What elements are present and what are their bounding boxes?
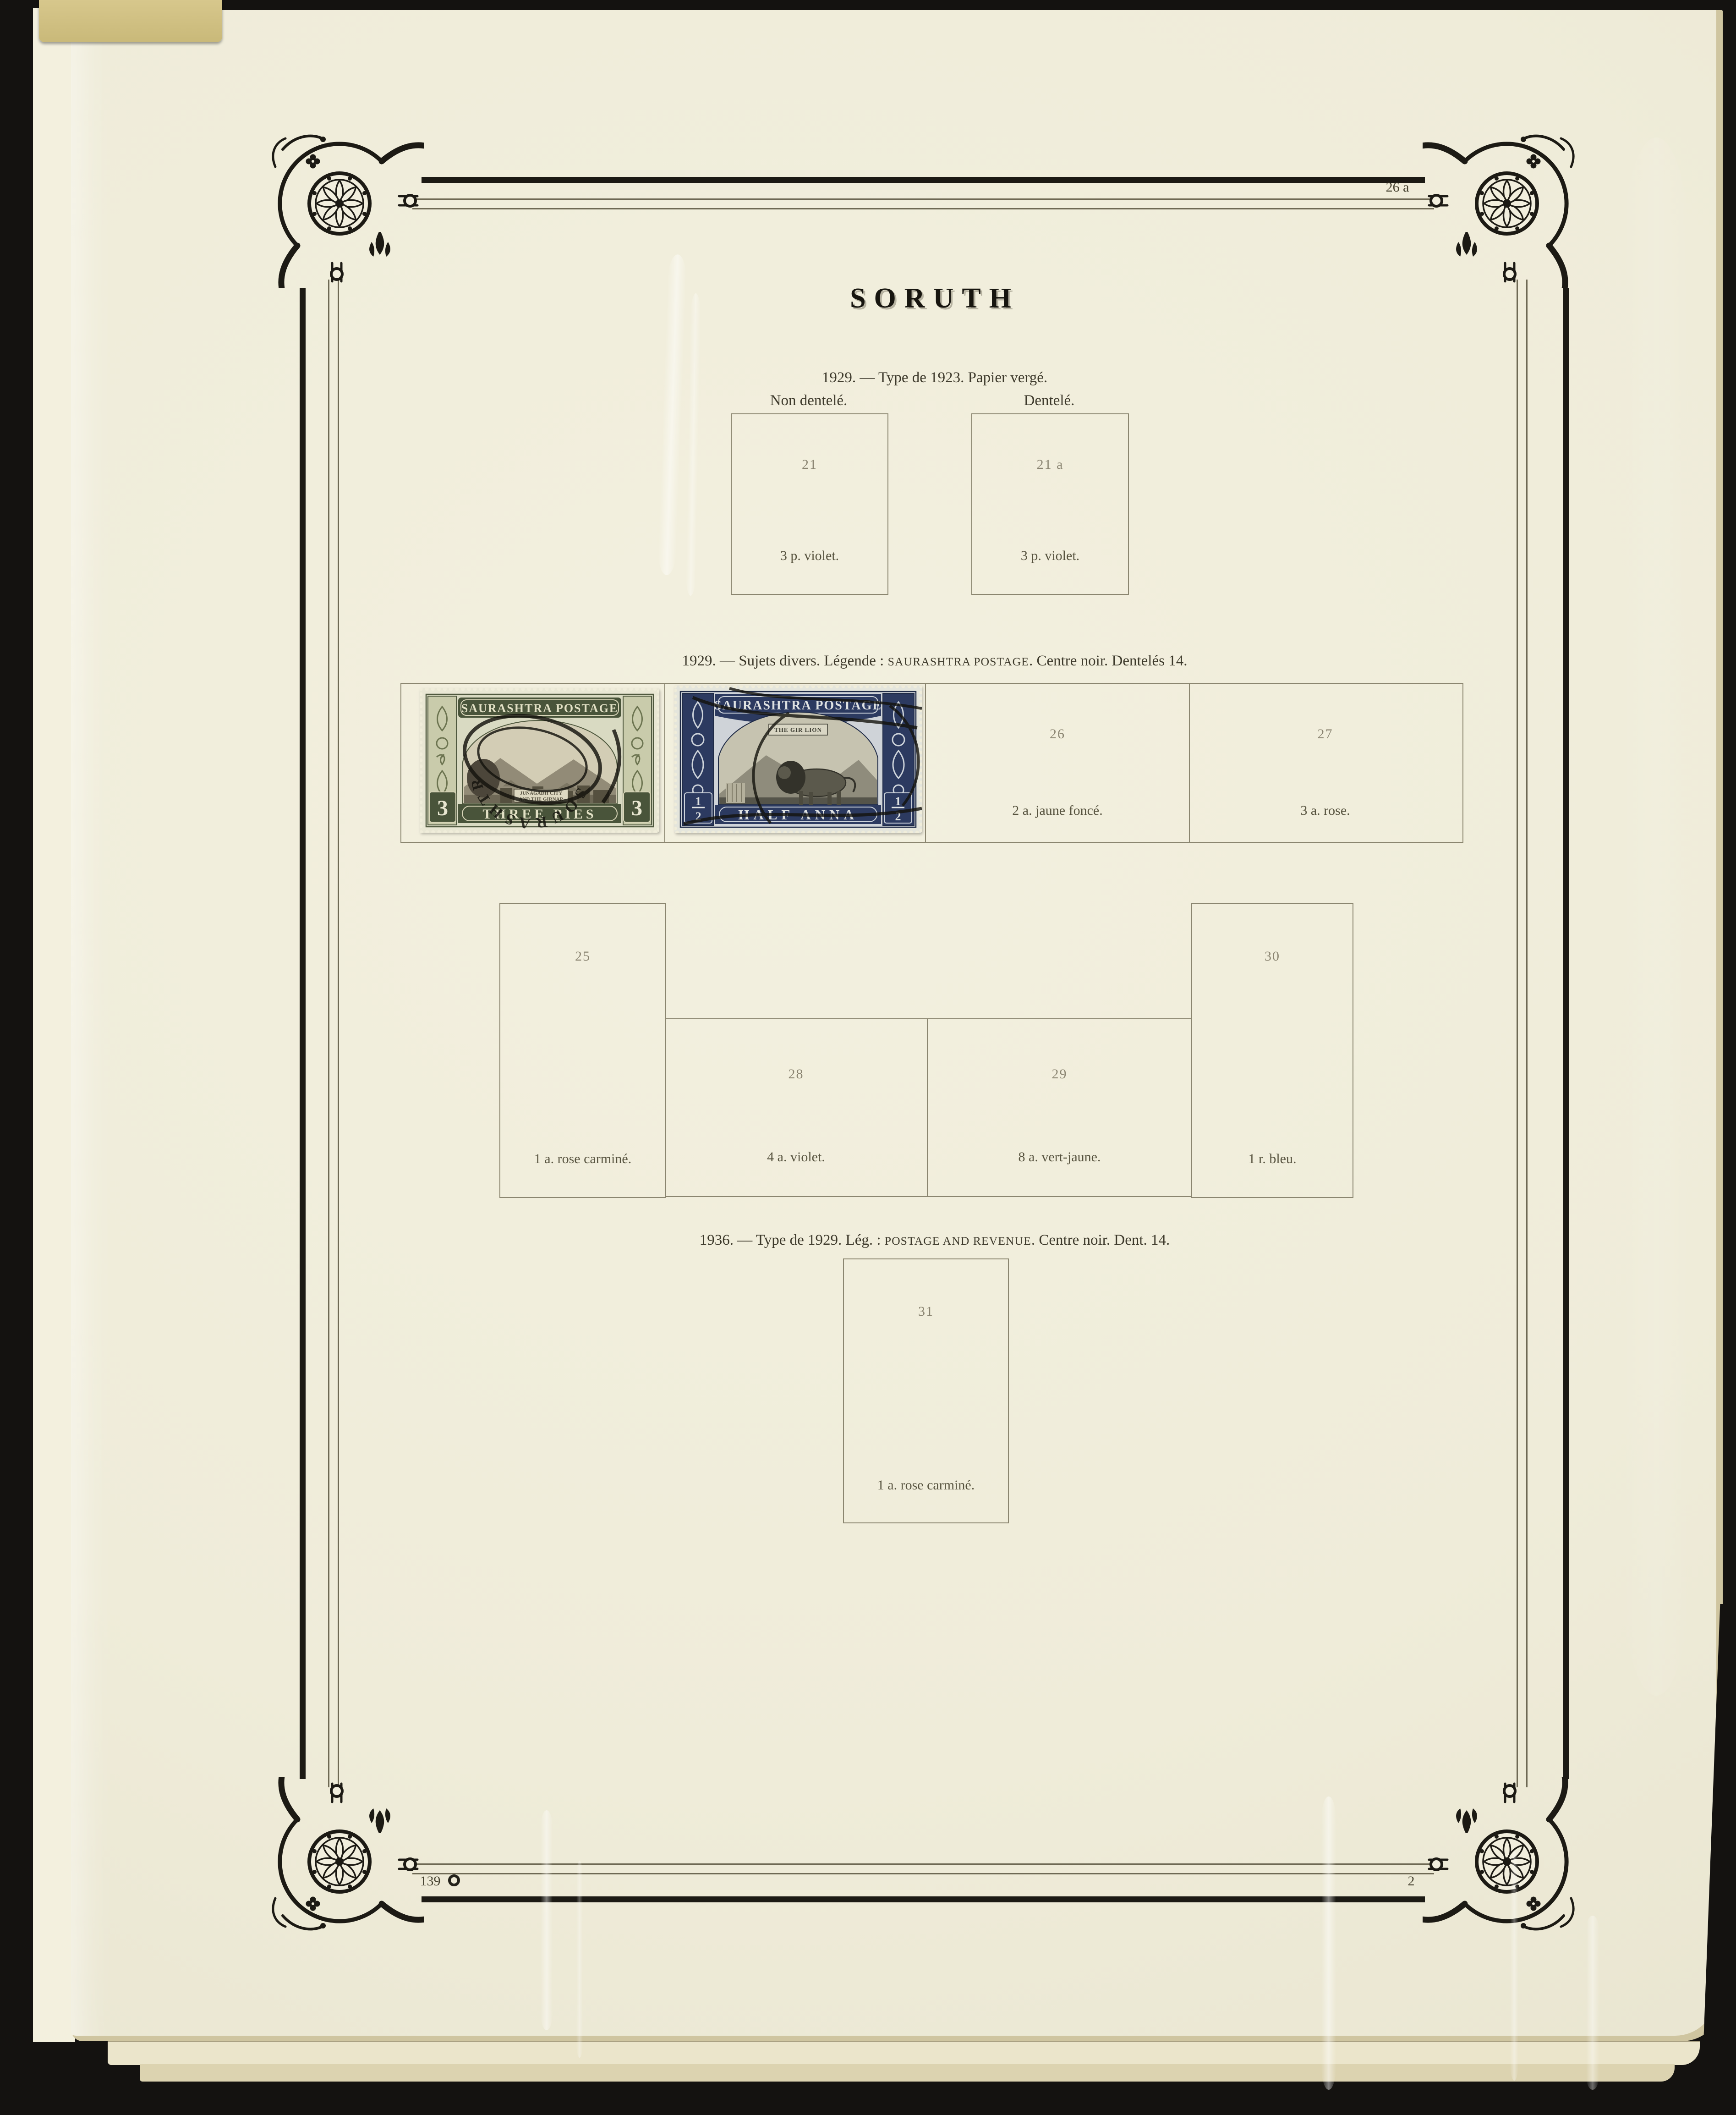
stamp-box-number: 31: [844, 1304, 1008, 1319]
stamp-row-divider: [664, 684, 665, 842]
section2-heading-post: . Centre noir. Dentelés 14.: [1029, 653, 1188, 669]
stamp-box-21a: 21 a 3 p. violet.: [971, 413, 1129, 595]
corner-ornament-top-right: [1423, 123, 1588, 288]
page-stack-edge-top: [39, 0, 222, 42]
frame-innerline-right: [1517, 280, 1528, 1787]
stamp-box-caption: 2 a. jaune foncé.: [926, 803, 1189, 819]
stamp-box-number: 30: [1192, 949, 1353, 964]
ring-ornament-icon: [448, 1874, 460, 1886]
page-title: SORUTH: [660, 282, 1210, 315]
page-stack-edge-bottom-1: [108, 2041, 1700, 2065]
section2-heading: 1929. — Sujets divers. Légende : SAURASH…: [302, 653, 1567, 670]
page-stack-edge-bottom-2: [140, 2064, 1675, 2082]
stamp-box-number: 25: [500, 949, 665, 964]
section3-heading-post: . Centre noir. Dent. 14.: [1031, 1232, 1170, 1248]
stamp-box-number: 21: [732, 457, 887, 472]
frame-border-right: [1563, 288, 1569, 1779]
stamp-box-number: 28: [665, 1066, 927, 1082]
grid-line-bottom: [665, 1196, 1191, 1197]
stamp-value-left: 3: [437, 796, 448, 820]
stamp-box-21: 21 3 p. violet.: [731, 413, 888, 595]
stamp-value-right: 3: [631, 796, 642, 820]
corner-ornament-bottom-left: [259, 1777, 424, 1942]
section3-heading-legend: POSTAGE AND REVENUE: [885, 1234, 1031, 1247]
stamp-box-caption: 3 a. rose.: [1190, 803, 1461, 819]
corner-ornament-top-left: [259, 123, 424, 288]
page-stack-edge-left: [33, 8, 75, 2042]
stamp-box-caption: 1 a. rose carminé.: [500, 1151, 665, 1167]
page-number-right: 2: [1379, 1873, 1443, 1890]
frame-innerline-top: [412, 198, 1434, 209]
stamp-box-caption: 4 a. violet.: [665, 1149, 927, 1165]
frame-border-top: [422, 177, 1425, 183]
page-number-left: 139: [389, 1873, 490, 1890]
stamp-half-anna-blue: SAURASHTRA POSTAGE THE GIR LION HALF ANN…: [674, 686, 922, 833]
frame-border-left: [300, 288, 306, 1779]
stamp-three-pies-green: SAURASHTRA POSTAGE JUNAGADH CITY AND THE…: [420, 688, 659, 833]
section1-heading: 1929. — Type de 1923. Papier vergé.: [302, 369, 1567, 387]
stamp-box-caption: 1 r. bleu.: [1192, 1151, 1353, 1167]
stamp-box-31: 31 1 a. rose carminé.: [843, 1258, 1009, 1523]
grid-line-vertical: [927, 1018, 928, 1197]
stamp-box-number: 29: [928, 1066, 1191, 1082]
frame-border-bottom: [422, 1896, 1425, 1902]
column-label-perforate: Dentelé.: [971, 392, 1127, 410]
stamp-box-25: 25 1 a. rose carminé.: [499, 903, 666, 1198]
plate-reference: 26 a: [1352, 180, 1443, 196]
stamp-box-number: 27: [1190, 726, 1461, 742]
stamp-box-caption: 3 p. violet.: [972, 548, 1128, 564]
stamp-vignette-label: THE GIR LION: [774, 726, 822, 733]
frame-innerline-bottom: [412, 1863, 1434, 1874]
section2-heading-pre: 1929. — Sujets divers. Légende :: [682, 653, 888, 669]
section2-heading-legend: SAURASHTRA POSTAGE: [888, 655, 1029, 668]
stamp-country-text: SAURASHTRA POSTAGE: [461, 702, 619, 715]
section3-heading: 1936. — Type de 1929. Lég. : POSTAGE AND…: [302, 1232, 1567, 1249]
stamp-box-number: 21 a: [972, 457, 1128, 472]
column-label-imperforate: Non dentelé.: [731, 392, 887, 410]
photo-stage: 26 a 139 2 SORUTH 1929. — Type de 1923. …: [0, 0, 1736, 2115]
svg-text:1: 1: [695, 795, 701, 808]
section3-heading-pre: 1936. — Type de 1929. Lég. :: [700, 1232, 885, 1248]
grid-line-horizontal: [665, 1018, 1191, 1019]
corner-ornament-bottom-right: [1423, 1777, 1588, 1942]
page-number-left-value: 139: [420, 1873, 441, 1889]
stamp-box-caption: 3 p. violet.: [732, 548, 887, 564]
stamp-box-number: 26: [926, 726, 1189, 742]
stamp-box-caption: 1 a. rose carminé.: [844, 1478, 1008, 1493]
stamp-box-30: 30 1 r. bleu.: [1191, 903, 1353, 1198]
frame-innerline-left: [328, 280, 339, 1787]
stamp-box-caption: 8 a. vert-jaune.: [928, 1149, 1191, 1165]
svg-text:1: 1: [895, 795, 901, 808]
